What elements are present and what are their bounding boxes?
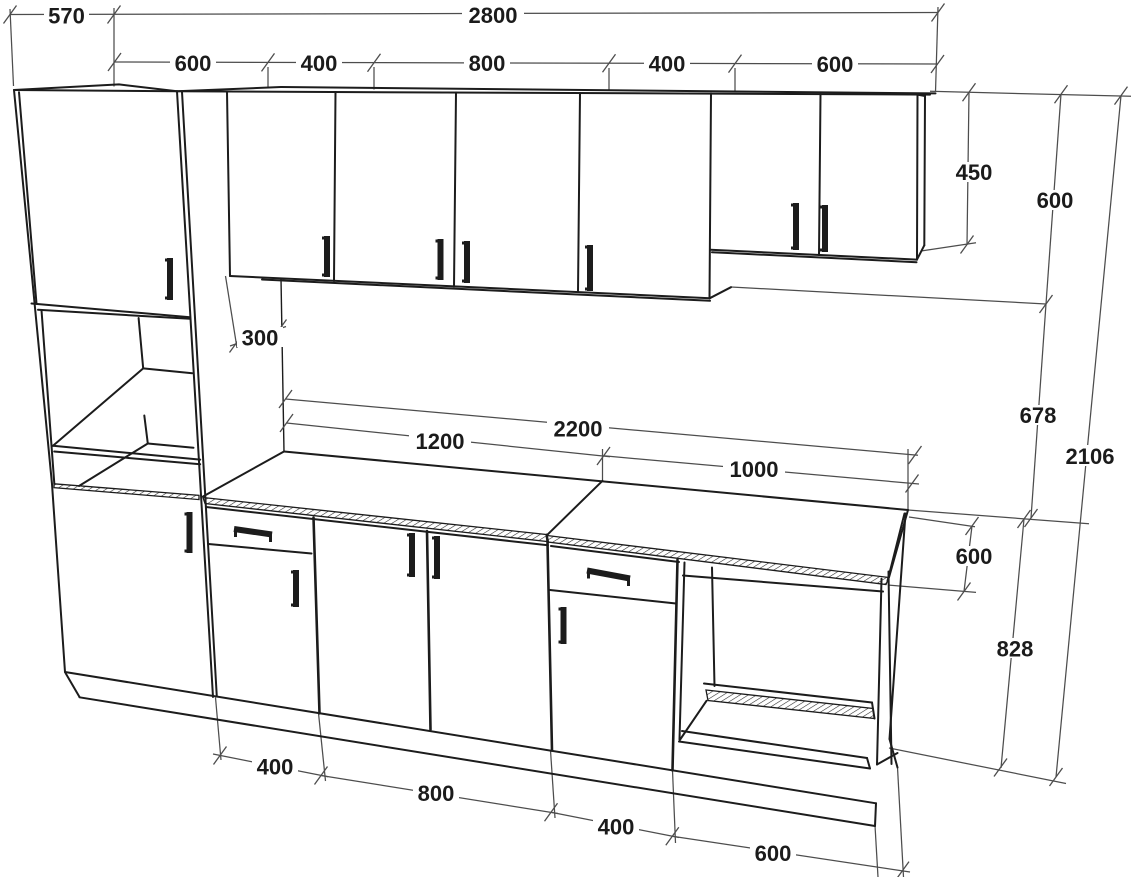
svg-text:2200: 2200 — [554, 417, 603, 442]
svg-text:400: 400 — [257, 755, 294, 780]
svg-text:570: 570 — [48, 4, 85, 29]
svg-text:800: 800 — [469, 51, 506, 76]
svg-text:2800: 2800 — [469, 3, 518, 28]
svg-text:600: 600 — [1037, 188, 1074, 213]
svg-text:450: 450 — [956, 160, 993, 185]
svg-text:600: 600 — [755, 841, 792, 866]
svg-text:2106: 2106 — [1066, 444, 1115, 469]
svg-text:1200: 1200 — [416, 429, 465, 454]
svg-text:600: 600 — [817, 52, 854, 77]
svg-text:400: 400 — [598, 815, 635, 840]
svg-text:600: 600 — [956, 544, 993, 569]
svg-text:300: 300 — [242, 326, 279, 351]
svg-text:400: 400 — [301, 51, 338, 76]
svg-text:828: 828 — [997, 637, 1034, 662]
svg-text:1000: 1000 — [730, 457, 779, 482]
svg-text:400: 400 — [649, 52, 686, 77]
svg-text:600: 600 — [175, 51, 212, 76]
svg-text:678: 678 — [1020, 403, 1057, 428]
svg-text:800: 800 — [418, 781, 455, 806]
